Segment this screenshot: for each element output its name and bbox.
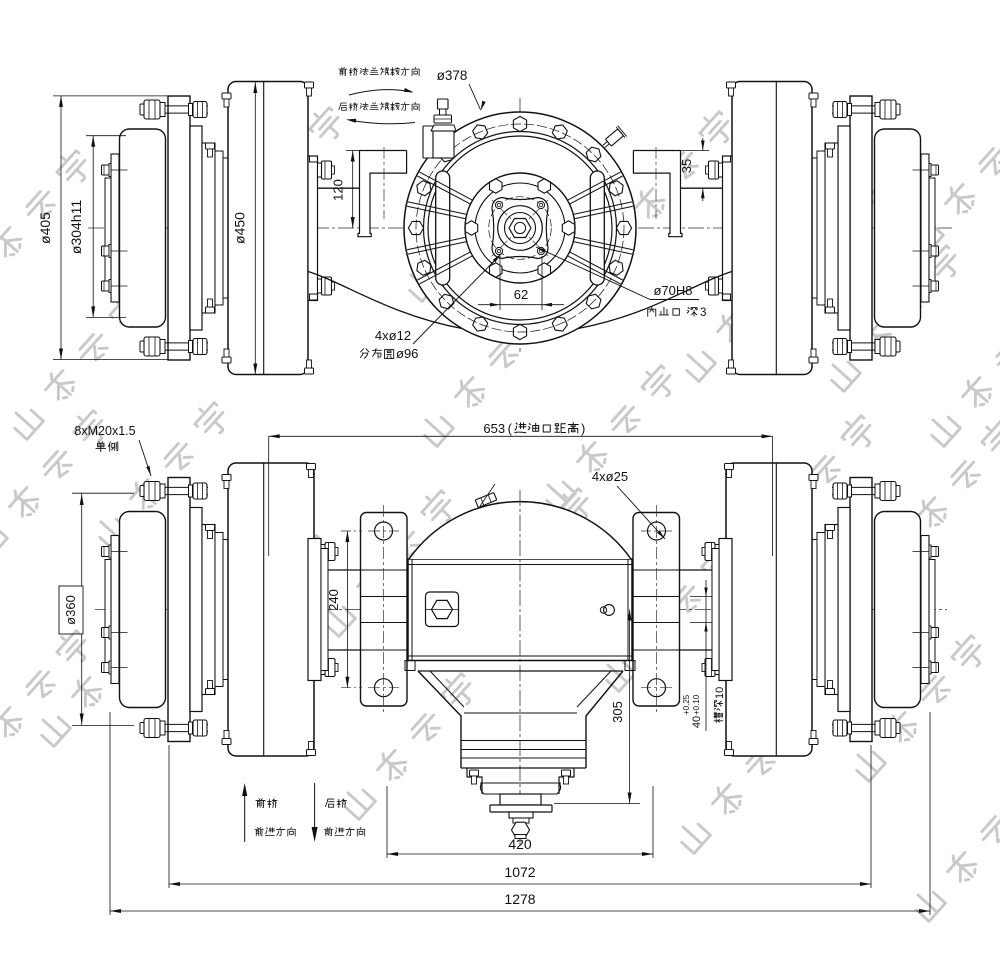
svg-text:240: 240 bbox=[326, 589, 341, 611]
svg-text:+0.25: +0.25 bbox=[682, 694, 691, 715]
svg-text:120: 120 bbox=[331, 179, 346, 201]
svg-text:3: 3 bbox=[700, 307, 706, 319]
svg-text:305: 305 bbox=[610, 701, 625, 723]
svg-text:35: 35 bbox=[679, 159, 694, 173]
svg-text:ø304h11: ø304h11 bbox=[68, 200, 84, 254]
svg-text:ø96: ø96 bbox=[396, 346, 418, 361]
svg-text:4xø12: 4xø12 bbox=[375, 328, 411, 343]
svg-text:ø405: ø405 bbox=[37, 212, 53, 244]
svg-text:ø360: ø360 bbox=[63, 595, 78, 625]
svg-text:4xø25: 4xø25 bbox=[592, 469, 628, 484]
svg-text:): ) bbox=[581, 421, 585, 436]
svg-text:420: 420 bbox=[508, 836, 532, 852]
svg-text:1278: 1278 bbox=[504, 891, 535, 907]
svg-text:ø70H8: ø70H8 bbox=[653, 283, 692, 298]
svg-text:8xM20x1.5: 8xM20x1.5 bbox=[74, 424, 135, 438]
svg-text:653 (: 653 ( bbox=[483, 421, 512, 436]
svg-text:ø450: ø450 bbox=[232, 212, 248, 244]
svg-text:40: 40 bbox=[691, 716, 703, 728]
svg-text:10: 10 bbox=[714, 687, 726, 699]
svg-text:62: 62 bbox=[514, 287, 528, 302]
svg-text:1072: 1072 bbox=[504, 864, 535, 880]
svg-text:+0.10: +0.10 bbox=[692, 694, 701, 715]
svg-text:ø378: ø378 bbox=[437, 68, 468, 83]
